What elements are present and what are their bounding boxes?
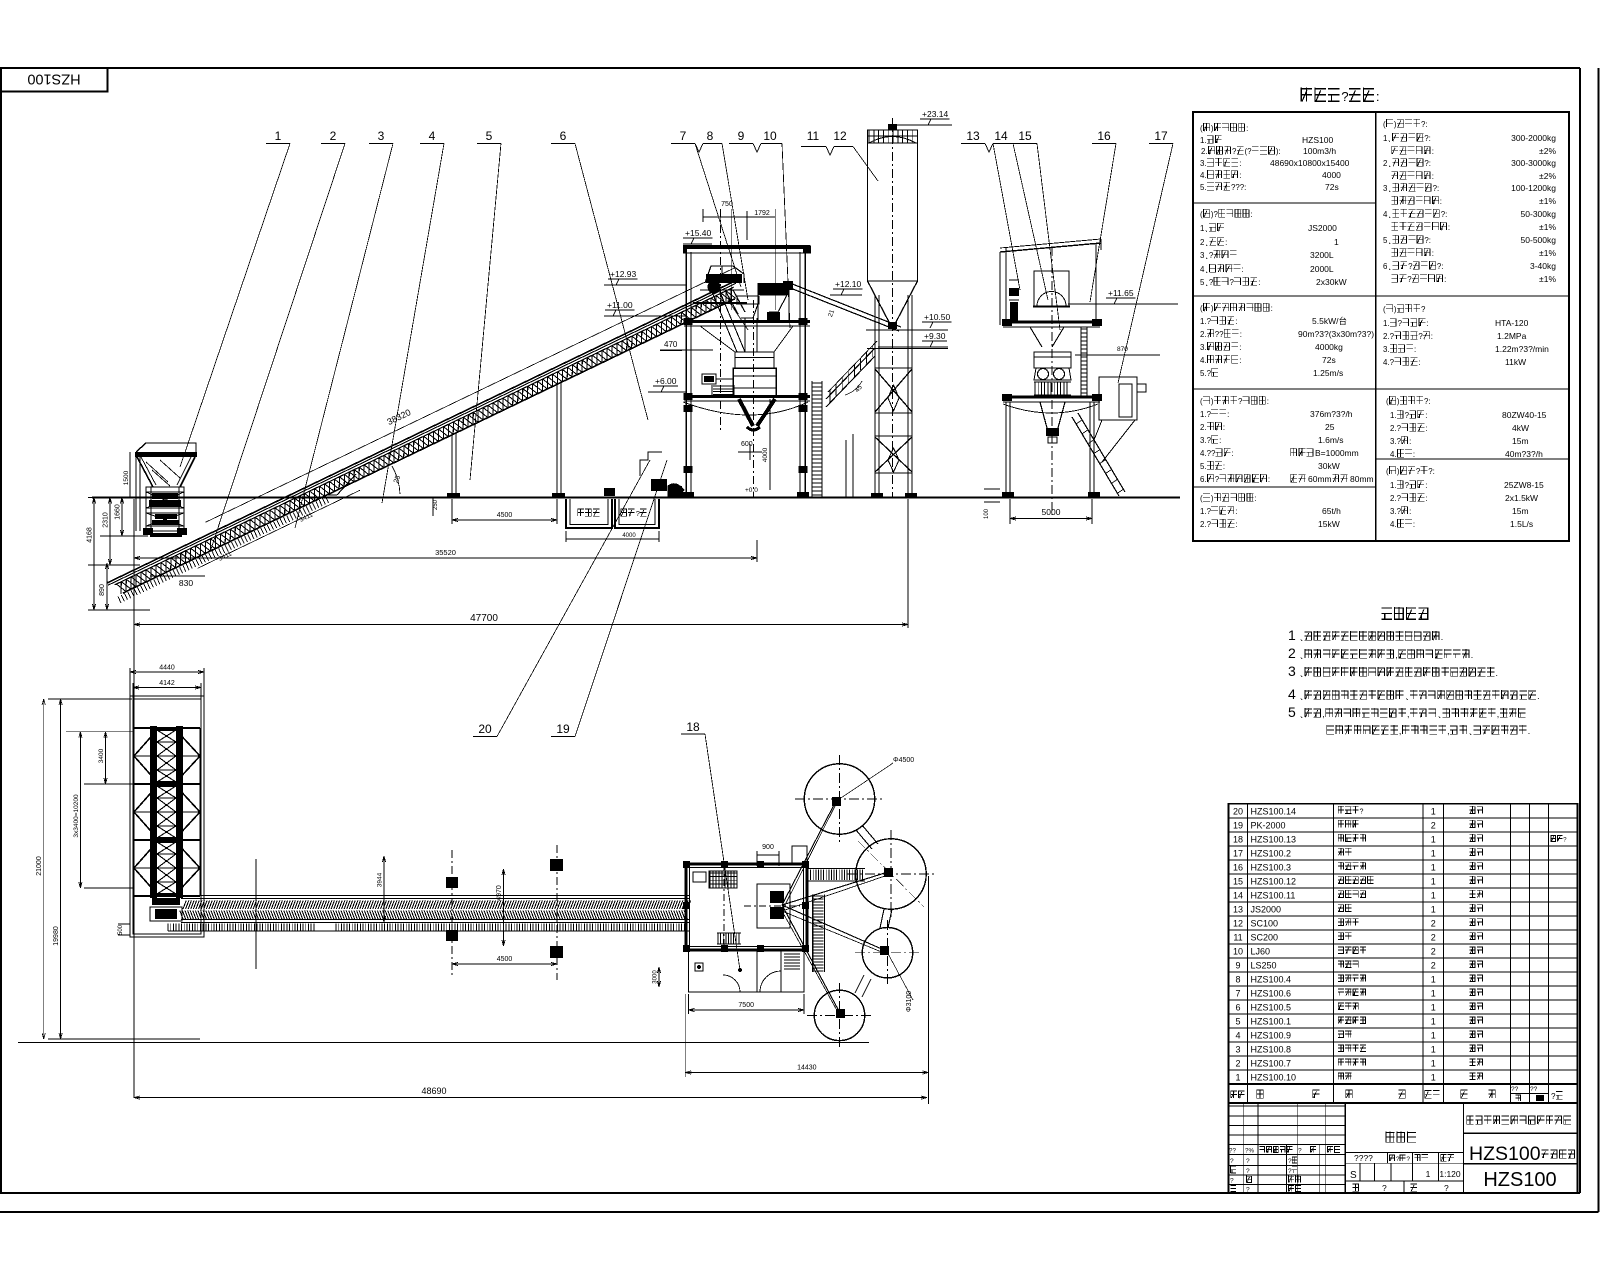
svg-text::: : xyxy=(1376,89,1380,104)
svg-text:2: 2 xyxy=(1431,918,1436,928)
svg-text:JS2000: JS2000 xyxy=(1308,223,1337,233)
svg-text:6: 6 xyxy=(1383,262,1388,271)
svg-text:?: ? xyxy=(1215,475,1220,484)
svg-text:1.5L/s: 1.5L/s xyxy=(1510,519,1533,529)
svg-text:?: ? xyxy=(1407,275,1412,284)
svg-text:10: 10 xyxy=(763,129,777,143)
svg-text:300-2000kg: 300-2000kg xyxy=(1511,133,1556,143)
svg-text:3: 3 xyxy=(1200,251,1205,260)
svg-text:+11.00: +11.00 xyxy=(607,300,633,310)
svg-text:): ) xyxy=(1397,467,1400,476)
svg-text:HZS100.5: HZS100.5 xyxy=(1251,1002,1292,1012)
svg-text:SC200: SC200 xyxy=(1251,932,1279,942)
svg-text:2: 2 xyxy=(1431,946,1436,956)
svg-text:830: 830 xyxy=(179,578,193,588)
svg-text:?:: ?: xyxy=(1424,134,1431,143)
svg-text:300-3000kg: 300-3000kg xyxy=(1511,158,1556,168)
svg-text::: : xyxy=(1425,481,1427,490)
svg-text:HZS100.7: HZS100.7 xyxy=(1251,1059,1292,1069)
svg-text:1: 1 xyxy=(1431,1016,1436,1026)
svg-text:4168: 4168 xyxy=(87,527,94,543)
svg-text:?: ? xyxy=(1288,1168,1292,1175)
svg-text:1: 1 xyxy=(1431,1073,1436,1083)
svg-text:?: ? xyxy=(1238,397,1243,406)
svg-text:(: ( xyxy=(1383,305,1386,314)
svg-text::: : xyxy=(1258,278,1260,287)
svg-text::: : xyxy=(1418,358,1420,367)
svg-text::: : xyxy=(1440,197,1442,206)
svg-text:100m3/h: 100m3/h xyxy=(1303,146,1336,156)
svg-text:2: 2 xyxy=(1288,645,1296,661)
svg-text:2: 2 xyxy=(1431,960,1436,970)
svg-text::: : xyxy=(1223,462,1225,471)
svg-text:3.: 3. xyxy=(1383,345,1390,354)
svg-text:): ) xyxy=(1397,397,1400,406)
svg-text:2: 2 xyxy=(1383,159,1387,168)
svg-text:2: 2 xyxy=(1200,238,1204,247)
svg-text:5.: 5. xyxy=(1200,462,1207,471)
svg-text:(: ( xyxy=(1200,124,1203,133)
svg-text:±1%: ±1% xyxy=(1539,274,1556,284)
svg-text:4.: 4. xyxy=(1200,171,1207,180)
svg-text:8: 8 xyxy=(707,129,714,143)
svg-text:5: 5 xyxy=(1383,236,1388,245)
svg-text:2: 2 xyxy=(1431,820,1436,830)
svg-text:?:: ?: xyxy=(1421,120,1428,129)
svg-text:S: S xyxy=(1350,1170,1357,1181)
svg-text:?:: ?: xyxy=(1437,262,1444,271)
svg-text::: : xyxy=(1225,238,1227,247)
svg-text::: : xyxy=(1413,450,1415,459)
svg-text:PK-2000: PK-2000 xyxy=(1251,820,1286,830)
svg-text:1.6m/s: 1.6m/s xyxy=(1318,435,1344,445)
svg-text:17: 17 xyxy=(1154,129,1168,143)
svg-text:1.2MPa: 1.2MPa xyxy=(1497,331,1527,341)
svg-text:470: 470 xyxy=(664,340,678,349)
svg-text:HZS100.13: HZS100.13 xyxy=(1251,834,1297,844)
svg-text:3.?: 3.? xyxy=(1390,437,1402,446)
svg-text:4000: 4000 xyxy=(762,447,769,462)
svg-text:????: ???? xyxy=(1354,1153,1373,1163)
svg-text:HZS100.6: HZS100.6 xyxy=(1251,988,1292,998)
svg-text:JS2000: JS2000 xyxy=(1251,904,1282,914)
svg-text:): ) xyxy=(1211,304,1214,313)
svg-text:1: 1 xyxy=(1235,1073,1240,1083)
svg-text:?: ? xyxy=(1418,332,1423,341)
svg-text::: : xyxy=(1448,223,1450,232)
svg-text::: : xyxy=(1425,424,1427,433)
svg-text:HZS100.8: HZS100.8 xyxy=(1251,1045,1292,1055)
svg-text:3: 3 xyxy=(1288,663,1296,679)
svg-text:7500: 7500 xyxy=(738,1002,754,1009)
svg-text:?: ? xyxy=(1421,305,1426,314)
svg-text:3: 3 xyxy=(1383,184,1388,193)
svg-text:4.: 4. xyxy=(1390,520,1397,529)
svg-text:SC100: SC100 xyxy=(1251,918,1279,928)
svg-text:2.?: 2.? xyxy=(1200,520,1212,529)
svg-text:(?: (? xyxy=(1245,147,1253,156)
svg-text:2: 2 xyxy=(1431,932,1436,942)
svg-text:15: 15 xyxy=(1233,876,1243,886)
svg-text:(: ( xyxy=(1386,397,1389,406)
svg-text:3: 3 xyxy=(378,129,385,143)
svg-text:3.?: 3.? xyxy=(1200,436,1212,445)
svg-text::: : xyxy=(1235,520,1237,529)
svg-text::: : xyxy=(1232,449,1234,458)
svg-text:2310: 2310 xyxy=(103,512,110,528)
svg-text:.: . xyxy=(1496,668,1498,678)
svg-text:)?: )? xyxy=(1211,210,1219,219)
svg-text:8: 8 xyxy=(1235,974,1240,984)
svg-text:,: , xyxy=(1407,709,1409,719)
svg-text:5000: 5000 xyxy=(1042,507,1061,517)
svg-text:HZS100: HZS100 xyxy=(1302,135,1333,145)
svg-text:40m?3?/h: 40m?3?/h xyxy=(1505,449,1543,459)
svg-text:LJ60: LJ60 xyxy=(1251,946,1271,956)
svg-text:1: 1 xyxy=(1334,237,1339,247)
svg-text::: : xyxy=(1219,436,1221,445)
svg-text::: : xyxy=(1246,124,1248,133)
svg-text:?: ? xyxy=(1230,278,1235,287)
svg-text:80ZW40-15: 80ZW40-15 xyxy=(1502,410,1547,420)
svg-text:1500: 1500 xyxy=(123,470,130,485)
svg-text:1: 1 xyxy=(1431,890,1436,900)
svg-text:?:: ?: xyxy=(1441,210,1448,219)
svg-text:48690: 48690 xyxy=(421,1086,446,1096)
svg-text:16: 16 xyxy=(1097,129,1111,143)
svg-text:,: , xyxy=(1497,709,1499,719)
svg-text:(: ( xyxy=(1383,120,1386,129)
svg-text:3-40kg: 3-40kg xyxy=(1530,261,1556,271)
svg-text:(: ( xyxy=(1386,467,1389,476)
svg-text:50-300kg: 50-300kg xyxy=(1521,209,1557,219)
svg-text:2.: 2. xyxy=(1200,423,1207,432)
svg-text:??: ?? xyxy=(1215,330,1224,339)
svg-text::: : xyxy=(1414,345,1416,354)
svg-text:3944: 3944 xyxy=(377,872,384,887)
svg-text::: : xyxy=(1239,343,1241,352)
svg-text:?%: ?% xyxy=(1245,1148,1254,1155)
svg-text:15kW: 15kW xyxy=(1318,519,1340,529)
svg-text:19: 19 xyxy=(1233,820,1243,830)
svg-text:HZS100: HZS100 xyxy=(27,70,80,86)
svg-text:6: 6 xyxy=(560,129,567,143)
svg-text:): ) xyxy=(1211,397,1214,406)
svg-text:20: 20 xyxy=(1233,806,1243,816)
svg-text:30kW: 30kW xyxy=(1318,461,1340,471)
svg-text:1: 1 xyxy=(1431,1059,1436,1069)
svg-text:19: 19 xyxy=(556,722,570,736)
svg-text:+12.10: +12.10 xyxy=(835,279,862,289)
svg-text:19980: 19980 xyxy=(53,926,60,946)
svg-text:6: 6 xyxy=(1235,1002,1240,1012)
svg-text:4500: 4500 xyxy=(497,512,513,519)
svg-text:+11.65: +11.65 xyxy=(1108,288,1134,298)
svg-text::: : xyxy=(1235,317,1237,326)
svg-text:HZS100: HZS100 xyxy=(1483,1169,1556,1191)
svg-text:?: ? xyxy=(1246,1187,1250,1194)
svg-text:65t/h: 65t/h xyxy=(1322,506,1341,516)
svg-text:500: 500 xyxy=(118,924,124,935)
svg-text:2x1.5kW: 2x1.5kW xyxy=(1505,493,1538,503)
svg-text:750: 750 xyxy=(721,201,733,208)
svg-text:3x3400=10200: 3x3400=10200 xyxy=(73,794,80,838)
svg-text:5.5kW/台: 5.5kW/台 xyxy=(1312,316,1347,326)
svg-text:?: ? xyxy=(1405,481,1410,490)
svg-text:?: ? xyxy=(1232,147,1237,156)
svg-text:35520: 35520 xyxy=(435,548,456,557)
svg-text:HZS100: HZS100 xyxy=(1469,1143,1541,1165)
svg-text:11kW: 11kW xyxy=(1505,357,1526,367)
svg-text:,: , xyxy=(1399,726,1401,736)
svg-text:4.?: 4.? xyxy=(1383,358,1395,367)
svg-text:±1%: ±1% xyxy=(1539,222,1556,232)
svg-text::: : xyxy=(1251,210,1253,219)
svg-text:.: . xyxy=(1471,650,1473,660)
svg-text:HZS100.3: HZS100.3 xyxy=(1251,862,1292,872)
svg-text:3400: 3400 xyxy=(98,748,105,763)
svg-text:1660: 1660 xyxy=(115,504,122,520)
svg-text:11: 11 xyxy=(1233,932,1242,942)
svg-text:):: ): xyxy=(1276,147,1281,156)
svg-text::: : xyxy=(1413,520,1415,529)
svg-text:3000: 3000 xyxy=(653,970,659,984)
svg-text:1:120: 1:120 xyxy=(1439,1169,1461,1179)
svg-text:?: ? xyxy=(1563,836,1567,843)
svg-text:HZS100.14: HZS100.14 xyxy=(1251,806,1297,816)
svg-text:?: ? xyxy=(1406,1156,1410,1163)
svg-text:1.?: 1.? xyxy=(1200,410,1212,419)
svg-text:15m: 15m xyxy=(1512,506,1529,516)
svg-text:2: 2 xyxy=(1235,1059,1240,1069)
svg-text:1: 1 xyxy=(1431,862,1436,872)
svg-text:1.?: 1.? xyxy=(1200,317,1212,326)
svg-text:?: ? xyxy=(636,509,640,518)
svg-text:1.: 1. xyxy=(1390,411,1397,420)
svg-text:1: 1 xyxy=(1426,1169,1431,1179)
svg-text:1792: 1792 xyxy=(754,210,770,217)
svg-text:1.: 1. xyxy=(1390,481,1397,490)
svg-text:???:: ???: xyxy=(1231,183,1246,192)
svg-text:3: 3 xyxy=(1235,1045,1240,1055)
svg-text:250: 250 xyxy=(433,499,439,510)
svg-text::: : xyxy=(1227,410,1229,419)
svg-text:4: 4 xyxy=(429,129,436,143)
svg-text:HZS100.10: HZS100.10 xyxy=(1251,1073,1297,1083)
svg-text:HZS100.12: HZS100.12 xyxy=(1251,876,1297,886)
svg-text:B=1000mm: B=1000mm xyxy=(1315,448,1359,458)
svg-text::: : xyxy=(1240,330,1242,339)
svg-text:12: 12 xyxy=(833,129,847,143)
svg-text:1: 1 xyxy=(1288,627,1296,643)
svg-text::: : xyxy=(1239,159,1241,168)
svg-text:4: 4 xyxy=(1235,1031,1240,1041)
svg-text:376m?3?/h: 376m?3?/h xyxy=(1310,409,1353,419)
svg-text:5: 5 xyxy=(486,129,493,143)
svg-text:): ) xyxy=(1394,120,1397,129)
svg-text:): ) xyxy=(1211,494,1214,503)
svg-text:(: ( xyxy=(1200,210,1203,219)
svg-text:72s: 72s xyxy=(1322,355,1336,365)
svg-text:7: 7 xyxy=(1235,988,1240,998)
svg-text:21000: 21000 xyxy=(36,856,43,876)
svg-text:+15.40: +15.40 xyxy=(685,228,712,238)
svg-text::: : xyxy=(1235,507,1237,516)
svg-text:4142: 4142 xyxy=(159,680,175,687)
svg-text:3.?: 3.? xyxy=(1390,507,1402,516)
svg-text:2.?: 2.? xyxy=(1383,332,1395,341)
svg-text:13: 13 xyxy=(1233,904,1243,914)
svg-text:?: ? xyxy=(1382,1183,1387,1193)
svg-text:38320: 38320 xyxy=(385,407,412,427)
svg-text:16: 16 xyxy=(1233,862,1243,872)
svg-text:4000: 4000 xyxy=(622,533,636,539)
svg-text:?:: ?: xyxy=(1424,159,1431,168)
svg-text:?: ? xyxy=(1551,1092,1556,1101)
svg-text:4000: 4000 xyxy=(1322,170,1341,180)
svg-text:5: 5 xyxy=(1200,278,1205,287)
svg-text:15: 15 xyxy=(1018,129,1032,143)
svg-text:15m: 15m xyxy=(1512,436,1529,446)
svg-text:890: 890 xyxy=(99,584,106,596)
svg-text:60mm: 60mm xyxy=(1308,474,1332,484)
svg-text::: : xyxy=(1409,507,1411,516)
svg-text::: : xyxy=(1432,249,1434,258)
svg-text:Φ4500: Φ4500 xyxy=(893,757,914,764)
svg-text:1.: 1. xyxy=(1200,136,1207,145)
svg-text:?: ? xyxy=(1416,467,1421,476)
svg-text:.: . xyxy=(1441,632,1443,642)
svg-text::: : xyxy=(1431,332,1433,341)
svg-text:?: ? xyxy=(1288,1158,1292,1165)
svg-text:?: ? xyxy=(1209,278,1214,287)
svg-text:25: 25 xyxy=(393,475,402,485)
svg-text:1: 1 xyxy=(1200,224,1204,233)
svg-text:,: , xyxy=(1322,709,1324,719)
svg-text:3.: 3. xyxy=(1200,343,1207,352)
svg-text:): ) xyxy=(1211,124,1214,133)
svg-text:?: ? xyxy=(1396,1156,1400,1163)
svg-text:4.: 4. xyxy=(1200,356,1207,365)
svg-text:?: ? xyxy=(1246,1168,1250,1175)
svg-text:9: 9 xyxy=(738,129,745,143)
svg-text:1: 1 xyxy=(1431,848,1436,858)
svg-text::: : xyxy=(1268,475,1270,484)
svg-text:(: ( xyxy=(1200,397,1203,406)
svg-text:4970: 4970 xyxy=(496,885,503,901)
svg-text:14430: 14430 xyxy=(797,1065,817,1072)
svg-text:+9.30: +9.30 xyxy=(924,331,946,341)
svg-text:18: 18 xyxy=(686,720,700,734)
svg-text::: : xyxy=(1241,265,1243,274)
svg-text:10: 10 xyxy=(1233,946,1243,956)
svg-text:900: 900 xyxy=(762,844,774,851)
svg-text:5.?: 5.? xyxy=(1200,369,1212,378)
svg-text:72s: 72s xyxy=(1325,182,1339,192)
svg-text:?: ? xyxy=(1405,411,1410,420)
svg-text::: : xyxy=(1444,275,1446,284)
svg-text:1: 1 xyxy=(1383,134,1387,143)
svg-text:+12.93: +12.93 xyxy=(610,269,637,279)
svg-text:?:: ?: xyxy=(1424,397,1431,406)
svg-text:+0.0: +0.0 xyxy=(745,487,758,494)
svg-text:HZS100.4: HZS100.4 xyxy=(1251,974,1292,984)
svg-text::: : xyxy=(1223,423,1225,432)
svg-text::: : xyxy=(1425,411,1427,420)
svg-text:1: 1 xyxy=(1431,1002,1436,1012)
svg-text:?:: ?: xyxy=(1428,467,1435,476)
svg-text::: : xyxy=(1409,437,1411,446)
svg-text:2000L: 2000L xyxy=(1310,264,1334,274)
svg-text:100: 100 xyxy=(984,508,990,519)
svg-text:+6.00: +6.00 xyxy=(655,376,677,386)
svg-text:17: 17 xyxy=(1233,848,1243,858)
svg-text:1: 1 xyxy=(1431,1045,1436,1055)
svg-text:??: ?? xyxy=(1229,1148,1236,1155)
svg-text:?:: ?: xyxy=(1433,184,1440,193)
svg-text:?: ? xyxy=(1360,807,1364,815)
svg-text:+23.14: +23.14 xyxy=(922,109,949,119)
svg-text:2.: 2. xyxy=(1200,330,1207,339)
svg-text:4: 4 xyxy=(1200,265,1205,274)
svg-text:): ) xyxy=(1394,305,1397,314)
svg-text:4: 4 xyxy=(1383,210,1388,219)
svg-text::: : xyxy=(1432,147,1434,156)
svg-text:600: 600 xyxy=(741,441,753,448)
svg-text:48690x10800x15400: 48690x10800x15400 xyxy=(1270,158,1350,168)
svg-text:HTA-120: HTA-120 xyxy=(1495,318,1529,328)
svg-text:21: 21 xyxy=(827,308,836,318)
svg-text:??: ?? xyxy=(1511,1086,1519,1093)
svg-text:??: ?? xyxy=(1530,1086,1538,1093)
svg-text:HZS100.11: HZS100.11 xyxy=(1251,890,1296,900)
svg-text::: : xyxy=(1267,397,1269,406)
svg-text:13: 13 xyxy=(966,129,980,143)
svg-text:?: ? xyxy=(1209,251,1214,260)
svg-text::: : xyxy=(1239,356,1241,365)
svg-text:4000kg: 4000kg xyxy=(1315,342,1343,352)
svg-text::: : xyxy=(1271,304,1273,313)
svg-text:±1%: ±1% xyxy=(1539,248,1556,258)
svg-text:+10.50: +10.50 xyxy=(924,312,951,322)
svg-text:LS250: LS250 xyxy=(1251,960,1277,970)
svg-text:1: 1 xyxy=(1431,988,1436,998)
svg-text:2.: 2. xyxy=(1201,147,1208,156)
svg-text:45: 45 xyxy=(854,384,864,394)
svg-text:11: 11 xyxy=(807,129,820,143)
svg-text:?: ? xyxy=(1444,1183,1449,1193)
svg-text:25ZW8-15: 25ZW8-15 xyxy=(1504,480,1544,490)
svg-text:2: 2 xyxy=(330,129,337,143)
svg-text:5.: 5. xyxy=(1200,183,1207,192)
svg-text:1.22m?3?/min: 1.22m?3?/min xyxy=(1495,344,1549,354)
svg-text:?: ? xyxy=(1246,1158,1250,1165)
svg-text:20: 20 xyxy=(478,722,492,736)
svg-text:25: 25 xyxy=(1325,422,1335,432)
svg-text:1: 1 xyxy=(1431,876,1436,886)
svg-text:1.?: 1.? xyxy=(1200,507,1212,516)
svg-text:12: 12 xyxy=(1233,918,1243,928)
svg-text:9: 9 xyxy=(1235,960,1240,970)
svg-text:?: ? xyxy=(1341,89,1348,104)
svg-text:18: 18 xyxy=(1233,834,1243,844)
svg-text:14: 14 xyxy=(994,129,1008,143)
svg-text::: : xyxy=(1239,171,1241,180)
svg-text:HZS100.2: HZS100.2 xyxy=(1251,848,1292,858)
svg-text:1: 1 xyxy=(275,129,282,143)
svg-text::: : xyxy=(1425,494,1427,503)
svg-text:3.: 3. xyxy=(1200,159,1207,168)
